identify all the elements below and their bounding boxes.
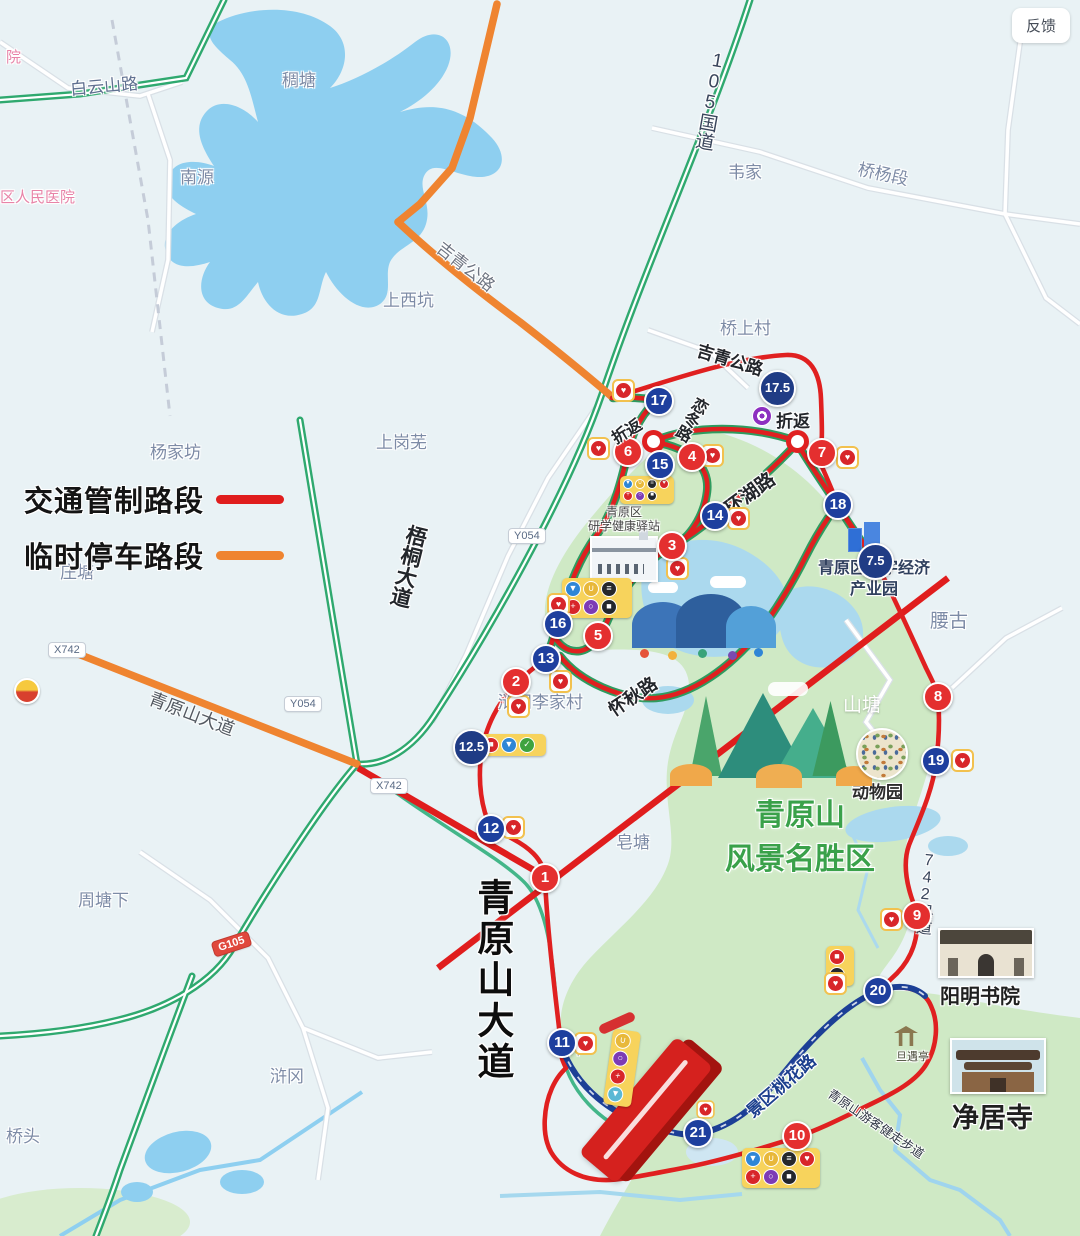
place-nanyuan: 南源 [180, 163, 214, 188]
scenic-area-title: 青原山风景名胜区 [720, 790, 880, 878]
route-marker-21: 21 [683, 1118, 713, 1148]
heart-icon: ♥ [616, 383, 631, 398]
route-marker-10: 10 [782, 1121, 812, 1151]
legend-temp-parking-label: 临时停车路段 [24, 534, 204, 576]
route-marker-1: 1 [530, 863, 560, 893]
gas-station-icon [14, 678, 40, 704]
food-icon: ≡ [601, 581, 617, 597]
sponge-icon: ○ [635, 491, 645, 501]
check-icon: ✓ [519, 737, 535, 753]
km-badge-12-5: 12.5 [453, 729, 490, 766]
sponge-icon: ○ [583, 599, 599, 615]
heart-icon: ♥ [731, 511, 746, 526]
medical-point-icon: ♥ [612, 379, 635, 402]
route-marker-13: 13 [531, 644, 561, 674]
jingju-temple-photo [950, 1038, 1046, 1094]
place-yangjiafang: 杨家坊 [150, 438, 201, 463]
place-choutang: 稠塘 [282, 66, 316, 91]
route-marker-8: 8 [923, 682, 953, 712]
route-marker-15: 15 [645, 450, 675, 480]
heart-icon: ♥ [705, 448, 720, 463]
drink-icon: ∪ [635, 479, 645, 489]
service-station: ▼ ∪ ≡ + ○ ■ [562, 578, 632, 618]
route-marker-16: 16 [543, 609, 573, 639]
place-hospital-partial: 院 [6, 46, 21, 67]
food-icon: ≡ [647, 479, 657, 489]
place-zaotang: 皂塘 [616, 828, 650, 853]
medical-point-icon: ♥ [696, 1100, 714, 1118]
water-icon: ▼ [606, 1085, 624, 1103]
badge-x742-a: X742 [48, 642, 86, 658]
turnaround-point-east [786, 430, 809, 453]
road-qingyuanshan-avenue-title: 青原山大道 [472, 878, 511, 1083]
water-icon: ▼ [745, 1151, 761, 1167]
drink-icon: ∪ [614, 1032, 632, 1050]
water-icon: ▼ [501, 737, 517, 753]
medical-point-icon: ♥ [824, 972, 847, 995]
heart-icon: ♥ [506, 820, 521, 835]
route-marker-17: 17 [644, 386, 674, 416]
yangming-academy-label: 阳明书院 [940, 980, 1020, 1009]
medical-point-icon: ♥ [507, 695, 530, 718]
heart-icon: ♥ [578, 1036, 593, 1051]
medical-point-icon: ♥ [549, 670, 572, 693]
badge-x742-b: X742 [370, 778, 408, 794]
medical-point-icon: ♥ [951, 749, 974, 772]
zoo-icon [856, 728, 908, 780]
study-station-label: 青原区研学健康驿站 [588, 505, 660, 533]
turnaround-label-east: 折返 [776, 407, 810, 432]
route-marker-7: 7 [807, 438, 837, 468]
place-qiaoshangcun: 桥上村 [720, 314, 771, 339]
route-marker-18: 18 [823, 490, 853, 520]
route-marker-12: 12 [476, 814, 506, 844]
place-weijia: 韦家 [728, 158, 762, 183]
danyu-pavilion-label: 旦遇亭 [896, 1048, 929, 1064]
heart-icon: ♥ [700, 1104, 712, 1116]
camera-icon: ■ [647, 491, 657, 501]
route-marker-20: 20 [863, 976, 893, 1006]
study-station-building [590, 536, 658, 582]
route-marker-19: 19 [921, 746, 951, 776]
water-icon: ▼ [623, 479, 633, 489]
route-marker-5: 5 [583, 621, 613, 651]
map-legend: 交通管制路段 临时停车路段 [24, 478, 284, 590]
food-icon: ≡ [781, 1151, 797, 1167]
heart-icon: ♥ [591, 441, 606, 456]
route-marker-2: 2 [501, 667, 531, 697]
sponge-icon: ○ [611, 1050, 629, 1068]
bus-icon: ■ [829, 949, 845, 965]
scenic-illustration [668, 682, 873, 794]
medical-point-icon: ♥ [727, 507, 750, 530]
heart-icon: ♥ [670, 561, 685, 576]
route-marker-11: 11 [547, 1028, 577, 1058]
place-hugang: 浒冈 [270, 1062, 304, 1087]
legend-temp-parking-swatch [216, 551, 284, 560]
heart-icon: ♥ [511, 699, 526, 714]
heart-icon: ♥ [884, 912, 899, 927]
medical-icon: ♥ [659, 479, 669, 489]
place-shangxikeng: 上西坑 [383, 286, 434, 311]
first-aid-icon: + [609, 1067, 627, 1085]
badge-y054-b: Y054 [284, 696, 322, 712]
heart-icon: ♥ [553, 674, 568, 689]
jingju-temple-label: 净居寺 [952, 1096, 1033, 1135]
legend-traffic-control-swatch [216, 495, 284, 504]
service-station: ▼ ∪ ≡ ♥ + ○ ■ [742, 1148, 820, 1188]
place-shanggangwu: 上岗芜 [376, 428, 427, 453]
turnaround-icon [752, 406, 772, 426]
route-marker-3: 3 [657, 531, 687, 561]
place-zhoutangxia: 周塘下 [78, 886, 129, 911]
medical-icon: ♥ [799, 1151, 815, 1167]
route-marker-9: 9 [902, 901, 932, 931]
first-aid-icon: + [623, 491, 633, 501]
drink-icon: ∪ [583, 581, 599, 597]
first-aid-icon: + [745, 1169, 761, 1185]
runners-illustration [628, 582, 778, 662]
heart-icon: ♥ [828, 976, 843, 991]
sponge-icon: ○ [763, 1169, 779, 1185]
medical-point-icon: ♥ [587, 437, 610, 460]
heart-icon: ♥ [955, 753, 970, 768]
medical-point-icon: ♥ [880, 908, 903, 931]
medical-point-icon: ♥ [836, 446, 859, 469]
yangming-academy-photo [938, 928, 1034, 978]
legend-traffic-control-label: 交通管制路段 [24, 478, 204, 520]
route-marker-14: 14 [700, 501, 730, 531]
badge-y054-a: Y054 [508, 528, 546, 544]
drink-icon: ∪ [763, 1151, 779, 1167]
heart-icon: ♥ [840, 450, 855, 465]
place-qiaotou: 桥头 [6, 1122, 40, 1147]
place-yaogu: 腰古 [930, 606, 968, 633]
place-hospital: 区人民医院 [0, 186, 75, 207]
km-badge-17-5: 17.5 [759, 370, 796, 407]
route-marker-4: 4 [677, 442, 707, 472]
medical-point-icon: ♥ [574, 1032, 597, 1055]
service-station: ▼ ∪ ≡ ♥ + ○ ■ [620, 476, 674, 504]
feedback-button[interactable]: 反馈 [1012, 8, 1070, 43]
km-badge-7-5: 7.5 [857, 543, 894, 580]
camera-icon: ■ [781, 1169, 797, 1185]
map-canvas[interactable]: 交通管制路段 临时停车路段 反馈 院 区人民医院 白云山路 稠塘 南源 韦家 桥… [0, 0, 1080, 1236]
camera-icon: ■ [601, 599, 617, 615]
